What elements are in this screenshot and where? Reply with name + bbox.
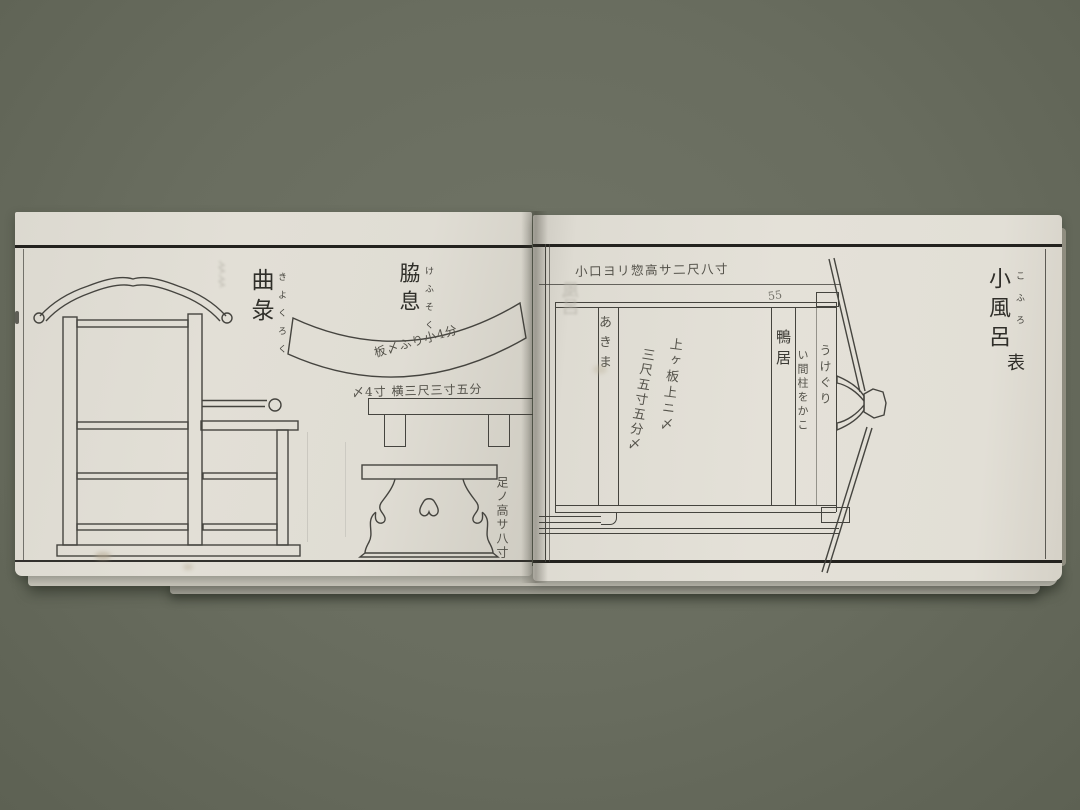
ukeguri-label: うけぐり (819, 344, 831, 408)
left-page: 曲彔 きよくろく 脇息 けふそく 板〆ふり小4分 〆4寸 横三尺三寸五分 足ノ高… (15, 212, 532, 576)
chair-crest-outer (40, 278, 226, 316)
upper-arm-line-a (829, 259, 860, 392)
lower-arm-line-a (822, 427, 867, 572)
stand-ornate-base (365, 479, 493, 553)
bleed-line-2 (345, 442, 346, 537)
chair-right-rail-4 (203, 524, 277, 530)
left-edge-ink-mark (15, 311, 19, 324)
pivot-upper-horn (837, 376, 864, 401)
foxing-spot-1 (95, 552, 111, 560)
chair-label: 曲彔 (248, 268, 271, 328)
upper-arm-line-b (834, 258, 865, 391)
chair-crest-inner (46, 285, 220, 321)
kamoi-label: 鴨居 (775, 329, 790, 371)
bench-right-leg (488, 414, 510, 447)
lower-arm-line-b (827, 428, 872, 573)
stand-top-board (362, 465, 497, 479)
chair-rail-4 (77, 524, 188, 530)
pivot-lower-horn (837, 405, 864, 430)
stand-note: 足ノ高サ八寸 (496, 476, 508, 560)
chair-right-leg (277, 430, 288, 545)
pedestal-stand-diagram (355, 460, 505, 564)
bleed-line-1 (307, 432, 308, 542)
chair-crest-left-scroll (34, 313, 44, 323)
pivot-knob (864, 389, 886, 418)
page-side-label: 表 (1005, 353, 1023, 371)
foxing-spot-2 (183, 564, 193, 570)
foxing-spot-3 (593, 365, 607, 374)
bleed-marks: 〻〻 (211, 260, 231, 288)
bench-left-leg (384, 414, 406, 447)
page-title: 小風呂 (986, 267, 1008, 354)
chair-rail-3 (77, 473, 188, 479)
chair-top-rail (77, 320, 188, 327)
chair-crest-right-scroll (222, 313, 232, 323)
right-page: 小口ヨリ惣高サ二尺八寸 55 あきま 上 (533, 215, 1062, 581)
chair-right-rail-3 (203, 473, 277, 479)
page-title-furigana: こふろ (1014, 271, 1023, 337)
stand-center-cutout (420, 499, 438, 516)
bleed-through-ghost: 風呂 (560, 281, 585, 315)
photo-scene: 曲彔 きよくろく 脇息 けふそく 板〆ふり小4分 〆4寸 横三尺三寸五分 足ノ高… (0, 0, 1080, 810)
chair-left-post (63, 317, 77, 545)
chair-seat-board (201, 421, 298, 430)
chair-mid-rail (77, 422, 188, 429)
bench-top-board (368, 398, 534, 415)
hashira-note: い間柱をかこ (797, 349, 808, 433)
chair-base-runner (57, 545, 300, 556)
left-page-top-rule (15, 245, 532, 248)
left-page-left-rule (23, 249, 24, 560)
chair-center-post (188, 314, 202, 545)
